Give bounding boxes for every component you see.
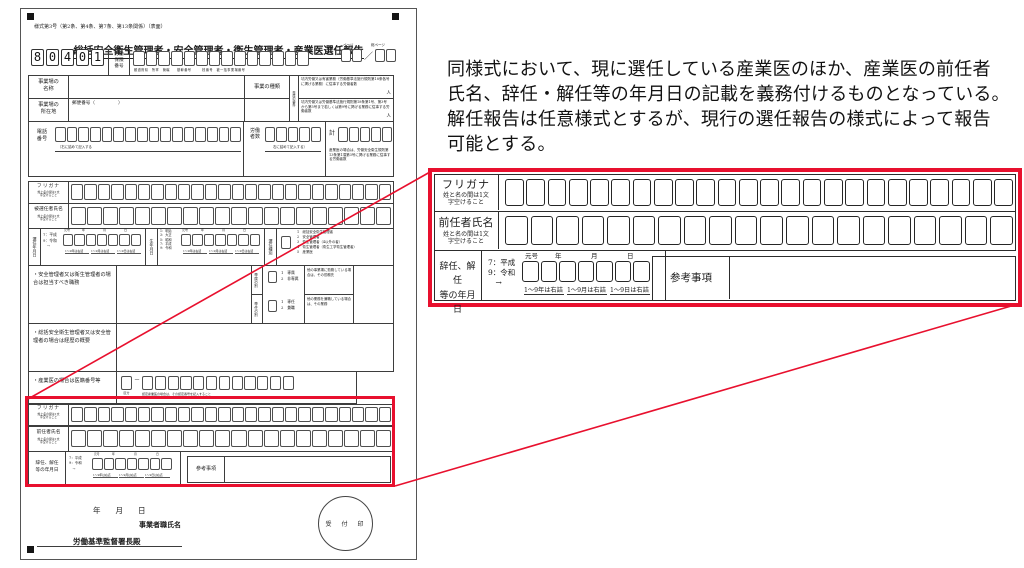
char-box bbox=[160, 127, 171, 142]
char-box bbox=[258, 184, 270, 200]
sanyoi-note: 産業医の場合は、労働安全衛生規則第13条第1項第3号に掲げる業務に従事する労働者… bbox=[329, 148, 392, 162]
senzoku-label: 専属の別 bbox=[251, 265, 263, 295]
char-box bbox=[245, 184, 257, 200]
char-box bbox=[155, 376, 166, 390]
char-box bbox=[165, 184, 177, 200]
day-header: 日 bbox=[243, 229, 246, 233]
char-box bbox=[250, 234, 260, 246]
char-box bbox=[633, 179, 652, 206]
char-box bbox=[531, 216, 554, 245]
char-box bbox=[285, 184, 297, 200]
registration-mark bbox=[392, 13, 399, 20]
appoint-date-label: 選任年月日 bbox=[28, 228, 41, 266]
char-box bbox=[325, 184, 337, 200]
char-box bbox=[611, 179, 630, 206]
callout-furigana-note: 姓と名の間は1文 字空けること bbox=[436, 192, 496, 206]
char-box bbox=[709, 216, 732, 245]
char-box bbox=[371, 127, 381, 142]
appointee-label-cell: 被選任者氏名 姓と名の間は1文 字空けること bbox=[28, 203, 69, 229]
char-box bbox=[360, 127, 370, 142]
char-box bbox=[382, 127, 392, 142]
char-box bbox=[299, 127, 309, 142]
char-box bbox=[234, 51, 246, 66]
total-count-boxes bbox=[338, 127, 392, 142]
career-label-cell: ・総括安全衛生管理者又は安全管理者の場合は経歴の概要 bbox=[28, 323, 117, 372]
char-box bbox=[264, 207, 279, 225]
date-note: 1～9年は右詰 bbox=[65, 249, 89, 254]
char-box bbox=[312, 184, 324, 200]
char-box bbox=[375, 49, 385, 62]
footer-signer: 事業者職氏名 bbox=[139, 521, 181, 530]
char-box bbox=[684, 216, 707, 245]
char-box bbox=[837, 216, 860, 245]
char-box bbox=[590, 179, 609, 206]
char-box bbox=[207, 127, 218, 142]
char-box bbox=[615, 261, 632, 282]
senzoku-note-cell: 他の事業場に勤務している場合は、その勤務先 bbox=[304, 265, 354, 295]
year-header: 年 bbox=[555, 252, 562, 260]
char-box bbox=[276, 127, 286, 142]
appoint-date-boxes bbox=[63, 234, 141, 246]
furigana-note: 姓と名の間は1文 字空けること bbox=[30, 191, 67, 198]
day-header: 日 bbox=[124, 229, 127, 233]
char-box bbox=[990, 216, 1013, 245]
char-box bbox=[824, 179, 843, 206]
char-box bbox=[113, 127, 124, 142]
birth-date-boxes bbox=[181, 234, 260, 246]
char-box bbox=[280, 207, 295, 225]
sennin-note-cell: 他の業務を兼職している場合は、その業務 bbox=[304, 294, 354, 324]
char-box bbox=[67, 127, 78, 142]
callout-resign-date-boxes bbox=[522, 261, 650, 282]
char-box bbox=[888, 179, 907, 206]
iseki-kubun-box bbox=[121, 376, 132, 390]
char-box bbox=[888, 216, 911, 245]
sennin-box bbox=[268, 300, 277, 312]
date-note: 1～9年は右詰 bbox=[183, 249, 207, 254]
char-box bbox=[151, 184, 163, 200]
footer-addressee: 労働基準監督署長殿 bbox=[73, 537, 141, 546]
appoint-type-label: 選任種別 bbox=[264, 228, 277, 266]
char-box bbox=[607, 216, 630, 245]
char-box bbox=[135, 207, 150, 225]
char-box bbox=[344, 207, 359, 225]
callout-predecessor-label: 前任者氏名 bbox=[435, 216, 497, 230]
magnified-callout: フリガナ 姓と名の間は1文 字空けること 前任者氏名 姓と名の間は1文 字空ける… bbox=[428, 168, 1022, 307]
code-digit: 0 bbox=[76, 49, 89, 66]
char-box bbox=[218, 184, 230, 200]
workers-fill-note: 右に詰めて記入する｝ bbox=[273, 145, 307, 149]
char-box bbox=[379, 184, 391, 200]
char-box bbox=[149, 127, 160, 142]
screenshot-canvas: 様式第3号（第2条、第4条、第7条、第13条関係）（表面） 総括安全衛生管理者・… bbox=[0, 0, 1024, 568]
char-box bbox=[658, 216, 681, 245]
workplace-address-field: 郵便番号（ ） bbox=[68, 98, 245, 122]
month-header: 月 bbox=[222, 229, 225, 233]
workers-underline bbox=[265, 151, 321, 152]
char-box bbox=[760, 216, 783, 245]
char-box bbox=[803, 179, 822, 206]
char-box bbox=[270, 376, 281, 390]
char-box bbox=[505, 216, 528, 245]
registration-mark bbox=[27, 546, 34, 553]
char-box bbox=[108, 234, 118, 246]
char-box bbox=[199, 207, 214, 225]
char-box bbox=[142, 376, 153, 390]
workplace-address-label: 事業場の 所在地 bbox=[29, 102, 68, 115]
divider bbox=[325, 122, 326, 176]
char-box bbox=[633, 216, 656, 245]
duty-label: ・安全管理者又は衛生管理者の場合は担当すべき職務 bbox=[33, 271, 111, 288]
char-box bbox=[244, 376, 255, 390]
phone-underline bbox=[55, 151, 241, 152]
furigana-boxes bbox=[71, 184, 391, 200]
workplace-name-label: 事業場の 名称 bbox=[29, 79, 68, 92]
callout-furigana-boxes bbox=[505, 179, 1013, 206]
char-box bbox=[63, 234, 73, 246]
char-box bbox=[219, 376, 230, 390]
highlight-box-source bbox=[25, 396, 395, 487]
char-box bbox=[578, 261, 595, 282]
char-box bbox=[786, 216, 809, 245]
date-note: 1～9月は右詰 bbox=[567, 285, 607, 295]
callout-resign-label: 辞任、解任 等の年月日 bbox=[436, 260, 479, 318]
mine-work-count-cell-2: 坑内労働又は労働基準法施行規則第18条第1号、第3号から第5号まで若しくは第9号… bbox=[298, 98, 394, 122]
iseki-label: ・産業医の場合は医籍番号等 bbox=[33, 377, 111, 385]
char-box bbox=[195, 127, 206, 142]
char-box bbox=[204, 234, 214, 246]
workers-label: 労働 者数 bbox=[245, 128, 265, 141]
char-box bbox=[863, 216, 886, 245]
char-box bbox=[582, 216, 605, 245]
char-box bbox=[781, 179, 800, 206]
char-box bbox=[131, 234, 141, 246]
appoint-type-options: 1 総括安全衛生管理者 2 安全管理者 3 衛生管理者（4以外の者） 4 衛生管… bbox=[297, 230, 357, 255]
char-box bbox=[296, 207, 311, 225]
char-box bbox=[232, 184, 244, 200]
callout-furigana-label-cell: フリガナ 姓と名の間は1文 字空けること bbox=[435, 175, 499, 210]
char-box bbox=[172, 127, 183, 142]
char-box bbox=[125, 184, 137, 200]
char-box bbox=[55, 127, 66, 142]
page-count-boxes: ／ bbox=[341, 49, 396, 62]
appointee-note: 姓と名の間は1文 字空けること bbox=[30, 215, 67, 222]
char-box bbox=[74, 234, 84, 246]
date-note: 1～9日は右詰 bbox=[117, 249, 141, 254]
workplace-name-field bbox=[68, 75, 245, 99]
annotation-text-line: 解任報告は任意様式とするが、現行の選任報告の様式によって報告 bbox=[447, 107, 1010, 132]
code-digit: 1 bbox=[91, 49, 104, 66]
char-box bbox=[288, 127, 298, 142]
business-type-cell-2 bbox=[244, 98, 290, 122]
date-note: 1～9月は右詰 bbox=[209, 249, 233, 254]
char-box bbox=[559, 261, 576, 282]
year-header: 年 bbox=[201, 229, 204, 233]
char-box bbox=[103, 207, 118, 225]
callout-predecessor-boxes bbox=[505, 216, 1013, 245]
page-slash: ／ bbox=[364, 49, 373, 62]
char-box bbox=[352, 49, 362, 62]
phone-band: 電話 番号 ｛右に詰めて記入する 労働 者数 右に詰めて記入する｝ 計 産業医の… bbox=[28, 121, 394, 177]
char-box bbox=[735, 216, 758, 245]
char-box bbox=[339, 184, 351, 200]
month-header: 月 bbox=[591, 252, 598, 260]
char-box bbox=[297, 51, 309, 66]
labour-insurance-boxes bbox=[133, 51, 309, 66]
appoint-era-legend: 7：平成 9：令和 → bbox=[43, 232, 57, 249]
char-box bbox=[272, 51, 284, 66]
birth-era-legend: 1：明治 3：大正 5：昭和 7：平成 9：令和 bbox=[160, 229, 172, 251]
char-box bbox=[87, 207, 102, 225]
char-box bbox=[181, 234, 191, 246]
char-box bbox=[146, 51, 158, 66]
char-box bbox=[215, 234, 225, 246]
divider bbox=[729, 257, 730, 299]
char-box bbox=[230, 127, 241, 142]
char-box bbox=[138, 184, 150, 200]
char-box bbox=[78, 127, 89, 142]
worker-count-boxes bbox=[265, 127, 321, 142]
birth-date-label: 生年月日 bbox=[145, 228, 158, 266]
char-box bbox=[248, 207, 263, 225]
char-box bbox=[98, 184, 110, 200]
char-box bbox=[285, 51, 297, 66]
char-box bbox=[151, 207, 166, 225]
char-box bbox=[238, 234, 248, 246]
char-box bbox=[272, 184, 284, 200]
callout-resign-label-cell: 辞任、解任 等の年月日 bbox=[434, 250, 482, 301]
char-box bbox=[556, 216, 579, 245]
char-box bbox=[178, 184, 190, 200]
char-box bbox=[696, 179, 715, 206]
char-box bbox=[259, 51, 271, 66]
char-box bbox=[675, 179, 694, 206]
char-box bbox=[812, 216, 835, 245]
char-box bbox=[718, 179, 737, 206]
char-box bbox=[192, 234, 202, 246]
char-box bbox=[111, 184, 123, 200]
char-box bbox=[265, 127, 275, 142]
reception-stamp-circle: 受 付 印 bbox=[318, 496, 373, 551]
footer-date-line: 年 月 日 bbox=[93, 506, 146, 515]
char-box bbox=[360, 207, 375, 225]
senzoku-box bbox=[268, 271, 277, 283]
iseki-dash: － bbox=[134, 377, 140, 385]
callout-reference-label: 参考事項 bbox=[653, 257, 729, 299]
char-box bbox=[909, 179, 928, 206]
labour-insurance-sublabels: 都道府県 所掌 管轄 基幹番号 枝番号 被一括事業場番号 bbox=[134, 68, 245, 72]
day-header: 日 bbox=[627, 252, 634, 260]
divider bbox=[243, 122, 244, 176]
code-digit: 0 bbox=[46, 49, 59, 66]
char-box bbox=[171, 51, 183, 66]
connector-line-bottom bbox=[395, 304, 1018, 486]
code-digit: 4 bbox=[61, 49, 74, 66]
char-box bbox=[215, 207, 230, 225]
char-box bbox=[376, 207, 391, 225]
month-header: 月 bbox=[103, 229, 106, 233]
char-box bbox=[119, 234, 129, 246]
date-note: 1～9日は右詰 bbox=[610, 285, 650, 295]
char-box bbox=[386, 49, 396, 62]
appoint-type-box bbox=[281, 236, 291, 249]
char-box bbox=[71, 207, 86, 225]
char-box bbox=[867, 179, 886, 206]
year-header: 年 bbox=[82, 229, 85, 233]
phone-fill-note: ｛右に詰めて記入する bbox=[58, 145, 92, 149]
era-header: 元号 bbox=[64, 229, 70, 233]
char-box bbox=[548, 179, 567, 206]
char-box bbox=[191, 184, 203, 200]
total-page-label: 総ページ bbox=[371, 43, 385, 47]
char-box bbox=[183, 207, 198, 225]
annotation-text-line: 氏名、辞任・解任等の年月日の記載を義務付けるものとなっている。 bbox=[447, 82, 1010, 107]
char-box bbox=[328, 207, 343, 225]
workplace-address-label-cell: 事業場の 所在地 bbox=[28, 98, 69, 122]
char-box bbox=[209, 51, 221, 66]
sennin-label: 専任の別 bbox=[251, 294, 263, 324]
char-box bbox=[125, 127, 136, 142]
char-box bbox=[168, 376, 179, 390]
char-box bbox=[505, 179, 524, 206]
mine-work-text-1: 坑内労働又は有害業務（労働基準法施行規則第18条各号に掲げる業務）に従事する労働… bbox=[301, 77, 390, 86]
char-box bbox=[84, 184, 96, 200]
char-box bbox=[596, 261, 613, 282]
total-label: 計 bbox=[329, 130, 335, 138]
char-box bbox=[167, 207, 182, 225]
char-box bbox=[654, 179, 673, 206]
annotation-text-line: 同様式において、現に選任している産業医のほか、産業医の前任者 bbox=[447, 57, 1010, 82]
era-header: 元号 bbox=[182, 229, 188, 233]
char-box bbox=[349, 127, 359, 142]
date-note: 1～9日は右詰 bbox=[235, 249, 259, 254]
annotation-paragraph: 同様式において、現に選任している産業医のほか、産業医の前任者 氏名、辞任・解任等… bbox=[447, 57, 1010, 157]
char-box bbox=[184, 127, 195, 142]
char-box bbox=[914, 216, 937, 245]
char-box bbox=[760, 179, 779, 206]
char-box bbox=[569, 179, 588, 206]
sennin-options: 1 専任 2 兼職 bbox=[281, 299, 295, 311]
phone-label: 電話 番号 bbox=[31, 129, 53, 142]
char-box bbox=[352, 184, 364, 200]
char-box bbox=[522, 261, 539, 282]
char-box bbox=[311, 127, 321, 142]
char-box bbox=[541, 261, 558, 282]
postal-code-label: 郵便番号（ ） bbox=[72, 101, 123, 107]
senzoku-options: 1 専属 2 非専属 bbox=[281, 270, 299, 282]
char-box bbox=[193, 376, 204, 390]
char-box bbox=[102, 127, 113, 142]
iseki-number-boxes bbox=[142, 376, 294, 390]
registration-mark bbox=[27, 13, 34, 20]
char-box bbox=[973, 179, 992, 206]
callout-predecessor-row: 前任者氏名 姓と名の間は1文 字空けること bbox=[434, 211, 1016, 251]
char-box bbox=[158, 51, 170, 66]
appointee-boxes bbox=[71, 207, 391, 225]
char-box bbox=[965, 216, 988, 245]
char-box bbox=[227, 234, 237, 246]
business-type-label: 事業の種類 bbox=[245, 84, 289, 91]
char-box bbox=[119, 207, 134, 225]
char-box bbox=[952, 179, 971, 206]
char-box bbox=[205, 184, 217, 200]
char-box bbox=[338, 127, 348, 142]
senzoku-note: 他の事業場に勤務している場合は、その勤務先 bbox=[307, 268, 351, 277]
callout-reference-cell: 参考事項 bbox=[652, 256, 1016, 301]
char-box bbox=[994, 179, 1013, 206]
char-box bbox=[283, 376, 294, 390]
char-box bbox=[133, 51, 145, 66]
page-label: ページ bbox=[343, 43, 353, 47]
char-box bbox=[137, 127, 148, 142]
char-box bbox=[257, 376, 268, 390]
duty-label-cell: ・安全管理者又は衛生管理者の場合は担当すべき職務 bbox=[28, 265, 117, 324]
mine-work-text-2: 坑内労働又は労働基準法施行規則第18条第1号、第3号から第5号まで若しくは第9号… bbox=[301, 100, 390, 114]
char-box bbox=[184, 51, 196, 66]
date-note: 1～9年は右詰 bbox=[524, 285, 564, 295]
char-box bbox=[633, 261, 650, 282]
era-header: 元号 bbox=[525, 252, 538, 260]
char-box bbox=[196, 51, 208, 66]
labour-insurance-label: 労働 保険 番号 bbox=[108, 49, 130, 76]
callout-furigana-row: フリガナ 姓と名の間は1文 字空けること bbox=[434, 174, 1016, 212]
mine-work-count-cell-1: 坑内労働又は有害業務（労働基準法施行規則第18条各号に掲げる業務）に従事する労働… bbox=[298, 75, 394, 99]
unit-person: 人 bbox=[387, 114, 392, 120]
furigana-label-cell: フリガナ 姓と名の間は1文 字空けること bbox=[28, 181, 69, 204]
char-box bbox=[97, 234, 107, 246]
callout-predecessor-note: 姓と名の間は1文 字空けること bbox=[436, 231, 496, 245]
annotation-text-line: 可能とする。 bbox=[447, 132, 1010, 157]
code-digit: 8 bbox=[31, 49, 44, 66]
workplace-name-label-cell: 事業場の 名称 bbox=[28, 75, 69, 99]
char-box bbox=[86, 234, 96, 246]
char-box bbox=[845, 179, 864, 206]
callout-resign-era: 7：平成 9：令和 → bbox=[488, 258, 515, 288]
char-box bbox=[231, 207, 246, 225]
char-box bbox=[341, 49, 351, 62]
char-box bbox=[939, 216, 962, 245]
appointee-label: 被選任者氏名 bbox=[29, 207, 68, 213]
char-box bbox=[739, 179, 758, 206]
business-type-cell: 事業の種類 bbox=[244, 75, 290, 99]
unit-person: 人 bbox=[387, 91, 392, 97]
addressee-underline bbox=[37, 546, 182, 547]
char-box bbox=[206, 376, 217, 390]
date-note: 1～9月は右詰 bbox=[91, 249, 115, 254]
form-number-note: 様式第3号（第2条、第4条、第7条、第13条関係）（表面） bbox=[34, 24, 166, 30]
career-label: ・総括安全衛生管理者又は安全管理者の場合は経歴の概要 bbox=[33, 329, 111, 346]
char-box bbox=[90, 127, 101, 142]
char-box bbox=[365, 184, 377, 200]
char-box bbox=[221, 51, 233, 66]
char-box bbox=[312, 207, 327, 225]
char-box bbox=[930, 179, 949, 206]
callout-resign-date-cell: 7：平成 9：令和 → 元号 年 月 日 1～9年は右詰 1～9月は右詰 1～9… bbox=[481, 250, 666, 301]
char-box bbox=[180, 376, 191, 390]
phone-boxes bbox=[55, 127, 241, 142]
callout-predecessor-label-cell: 前任者氏名 姓と名の間は1文 字空けること bbox=[435, 212, 499, 249]
sennin-note: 他の業務を兼職している場合は、その業務 bbox=[307, 297, 351, 306]
form-code-boxes: 8 0 4 0 1 bbox=[31, 49, 104, 66]
char-box bbox=[219, 127, 230, 142]
callout-furigana-label: フリガナ bbox=[435, 178, 497, 192]
char-box bbox=[71, 184, 83, 200]
char-box bbox=[526, 179, 545, 206]
char-box bbox=[247, 51, 259, 66]
char-box bbox=[298, 184, 310, 200]
char-box bbox=[232, 376, 243, 390]
